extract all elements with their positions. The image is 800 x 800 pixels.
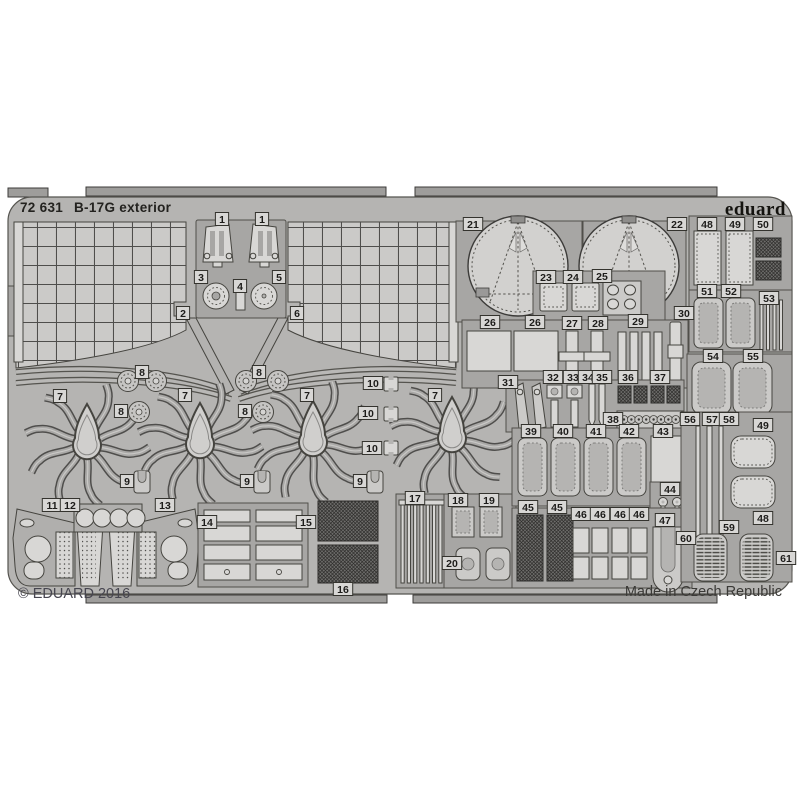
svg-text:46: 46 (594, 509, 606, 521)
part-number-label: 8 (135, 366, 148, 380)
part-number-label: 20 (442, 557, 461, 571)
svg-text:21: 21 (467, 219, 479, 231)
part-number-label: 48 (697, 218, 716, 232)
svg-text:30: 30 (678, 308, 690, 320)
part-number-label: 46 (590, 508, 609, 522)
part-number-label: 60 (676, 532, 695, 546)
part-10-brackets (384, 376, 398, 456)
part-number-label: 15 (296, 516, 315, 530)
svg-text:55: 55 (747, 351, 759, 363)
svg-text:7: 7 (182, 390, 188, 402)
copyright-text: © EDUARD 2016 (18, 586, 130, 602)
svg-text:20: 20 (446, 558, 458, 570)
svg-text:32: 32 (547, 372, 559, 384)
part-number-label: 11 (42, 499, 61, 513)
svg-text:2: 2 (180, 308, 186, 320)
part-number-label: 51 (697, 285, 716, 299)
part-number-label: 5 (272, 271, 285, 285)
part-number-label: 36 (618, 371, 637, 385)
part-number-label: 17 (405, 492, 424, 506)
part-number-label: 55 (743, 350, 762, 364)
part-number-label: 45 (547, 501, 566, 515)
part-number-label: 40 (553, 425, 572, 439)
part-number-label: 7 (428, 389, 441, 403)
part-number-label: 26 (480, 316, 499, 330)
svg-text:36: 36 (622, 372, 634, 384)
part-number-label: 14 (197, 516, 216, 530)
part-number-label: 2 (176, 307, 189, 321)
svg-text:8: 8 (242, 406, 248, 418)
part-number-label: 19 (479, 494, 498, 508)
part-number-label: 9 (240, 475, 253, 489)
svg-text:14: 14 (201, 517, 213, 529)
parts-56-to-61 (681, 412, 792, 582)
svg-text:9: 9 (357, 476, 363, 488)
part-number-label: 23 (536, 271, 555, 285)
svg-text:49: 49 (729, 219, 741, 231)
svg-text:60: 60 (680, 533, 692, 545)
part-number-label: 35 (592, 371, 611, 385)
svg-text:38: 38 (607, 414, 619, 426)
svg-text:24: 24 (567, 272, 579, 284)
svg-text:43: 43 (657, 426, 669, 438)
part-number-label: 1 (255, 213, 268, 227)
svg-text:42: 42 (623, 426, 635, 438)
part-number-label: 25 (592, 270, 611, 284)
svg-text:44: 44 (664, 484, 676, 496)
svg-text:9: 9 (124, 476, 130, 488)
svg-text:37: 37 (654, 372, 666, 384)
svg-text:45: 45 (551, 502, 563, 514)
part-number-label: 42 (619, 425, 638, 439)
svg-text:19: 19 (483, 495, 495, 507)
part-number-label: 3 (194, 271, 207, 285)
part-number-label: 21 (463, 218, 482, 232)
part-number-label: 8 (252, 366, 265, 380)
part-number-label: 46 (629, 508, 648, 522)
svg-text:29: 29 (632, 316, 644, 328)
part-number-label: 7 (300, 389, 313, 403)
svg-text:48: 48 (757, 513, 769, 525)
part-number-label: 31 (498, 376, 517, 390)
part-number-label: 56 (680, 413, 699, 427)
svg-text:39: 39 (525, 426, 537, 438)
part-number-label: 32 (543, 371, 562, 385)
part-number-label: 53 (759, 292, 778, 306)
svg-text:17: 17 (409, 493, 421, 505)
svg-text:10: 10 (362, 408, 374, 420)
parts-18-19-20 (444, 494, 516, 588)
svg-text:7: 7 (432, 390, 438, 402)
part-number-label: 7 (178, 389, 191, 403)
svg-text:57: 57 (706, 414, 718, 426)
svg-text:15: 15 (300, 517, 312, 529)
svg-text:12: 12 (64, 500, 76, 512)
svg-text:1: 1 (219, 214, 225, 226)
svg-text:3: 3 (198, 272, 204, 284)
svg-text:31: 31 (502, 377, 514, 389)
svg-text:35: 35 (596, 372, 608, 384)
svg-text:59: 59 (723, 522, 735, 534)
part-number-label: 16 (333, 583, 352, 597)
svg-text:16: 16 (337, 584, 349, 596)
part-number-label: 18 (448, 494, 467, 508)
parts-1-to-5-block (196, 220, 286, 318)
svg-text:40: 40 (557, 426, 569, 438)
svg-text:10: 10 (367, 378, 379, 390)
svg-text:53: 53 (763, 293, 775, 305)
svg-text:13: 13 (159, 500, 171, 512)
part-number-label: 1 (215, 213, 228, 227)
svg-text:46: 46 (575, 509, 587, 521)
svg-text:28: 28 (592, 318, 604, 330)
part-number-label: 12 (60, 499, 79, 513)
part-number-label: 7 (53, 390, 66, 404)
svg-text:27: 27 (566, 318, 578, 330)
part-number-label: 8 (238, 405, 251, 419)
part-number-label: 46 (571, 508, 590, 522)
svg-text:23: 23 (540, 272, 552, 284)
svg-text:46: 46 (614, 509, 626, 521)
part-number-label: 8 (114, 405, 127, 419)
part-number-label: 61 (776, 552, 795, 566)
part-number-label: 37 (650, 371, 669, 385)
svg-text:33: 33 (567, 372, 579, 384)
svg-text:49: 49 (757, 420, 769, 432)
svg-text:48: 48 (701, 219, 713, 231)
svg-text:54: 54 (707, 351, 719, 363)
part-number-label: 24 (563, 271, 582, 285)
svg-text:58: 58 (723, 414, 735, 426)
part-number-label: 48 (753, 512, 772, 526)
part-number-label: 26 (525, 316, 544, 330)
svg-text:26: 26 (529, 317, 541, 329)
strip-comb-17 (396, 494, 448, 588)
part-number-label: 4 (233, 280, 246, 294)
svg-text:61: 61 (780, 553, 792, 565)
sheet-title: B-17G exterior (74, 200, 172, 215)
part-number-label: 22 (667, 218, 686, 232)
part-number-label: 41 (586, 425, 605, 439)
part-number-label: 46 (610, 508, 629, 522)
part-number-label: 43 (653, 425, 672, 439)
part-number-label: 58 (719, 413, 738, 427)
svg-text:8: 8 (256, 367, 262, 379)
part-number-label: 10 (358, 407, 377, 421)
part-number-label: 52 (721, 285, 740, 299)
fret-sheet: 72 631 B-17G exterior eduard © EDUARD 20… (8, 197, 796, 602)
svg-text:46: 46 (633, 509, 645, 521)
part-number-label: 39 (521, 425, 540, 439)
svg-text:6: 6 (294, 308, 300, 320)
svg-text:26: 26 (484, 317, 496, 329)
part-number-label: 49 (753, 419, 772, 433)
made-in-text: Made in Czech Republic (625, 584, 782, 600)
svg-text:45: 45 (522, 502, 534, 514)
svg-text:7: 7 (57, 391, 63, 403)
svg-text:18: 18 (452, 495, 464, 507)
svg-text:52: 52 (725, 286, 737, 298)
part-number-label: 45 (518, 501, 537, 515)
photoetch-product-photo: 72 631 B-17G exterior eduard © EDUARD 20… (0, 0, 800, 800)
part-number-label: 50 (753, 218, 772, 232)
part-number-label: 54 (703, 350, 722, 364)
brand-logo: eduard (725, 199, 786, 220)
svg-text:56: 56 (684, 414, 696, 426)
svg-text:5: 5 (276, 272, 282, 284)
svg-text:10: 10 (366, 443, 378, 455)
part-number-label: 9 (120, 475, 133, 489)
part-number-label: 30 (674, 307, 693, 321)
svg-text:51: 51 (701, 286, 713, 298)
parts-54-55 (687, 354, 792, 416)
part-number-label: 27 (562, 317, 581, 331)
svg-text:8: 8 (118, 406, 124, 418)
part-number-label: 10 (362, 442, 381, 456)
part-number-label: 9 (353, 475, 366, 489)
part-number-label: 59 (719, 521, 738, 535)
svg-text:47: 47 (659, 515, 671, 527)
part-number-label: 47 (655, 514, 674, 528)
part-number-label: 6 (290, 307, 303, 321)
turret-discs-21-22 (456, 216, 686, 322)
part-number-label: 13 (155, 499, 174, 513)
catalog-number: 72 631 (20, 200, 63, 215)
svg-text:7: 7 (304, 390, 310, 402)
svg-text:1: 1 (259, 214, 265, 226)
svg-text:41: 41 (590, 426, 602, 438)
svg-text:8: 8 (139, 367, 145, 379)
svg-text:50: 50 (757, 219, 769, 231)
part-number-label: 29 (628, 315, 647, 329)
svg-text:4: 4 (237, 281, 243, 293)
svg-text:22: 22 (671, 219, 683, 231)
part-number-label: 57 (702, 413, 721, 427)
part-number-label: 49 (725, 218, 744, 232)
photoetch-fret-image: 72 631 B-17G exterior eduard © EDUARD 20… (0, 0, 800, 800)
part-number-label: 28 (588, 317, 607, 331)
part-number-label: 10 (363, 377, 382, 391)
svg-text:25: 25 (596, 271, 608, 283)
part-number-label: 44 (660, 483, 679, 497)
svg-text:9: 9 (244, 476, 250, 488)
svg-text:11: 11 (46, 500, 57, 512)
